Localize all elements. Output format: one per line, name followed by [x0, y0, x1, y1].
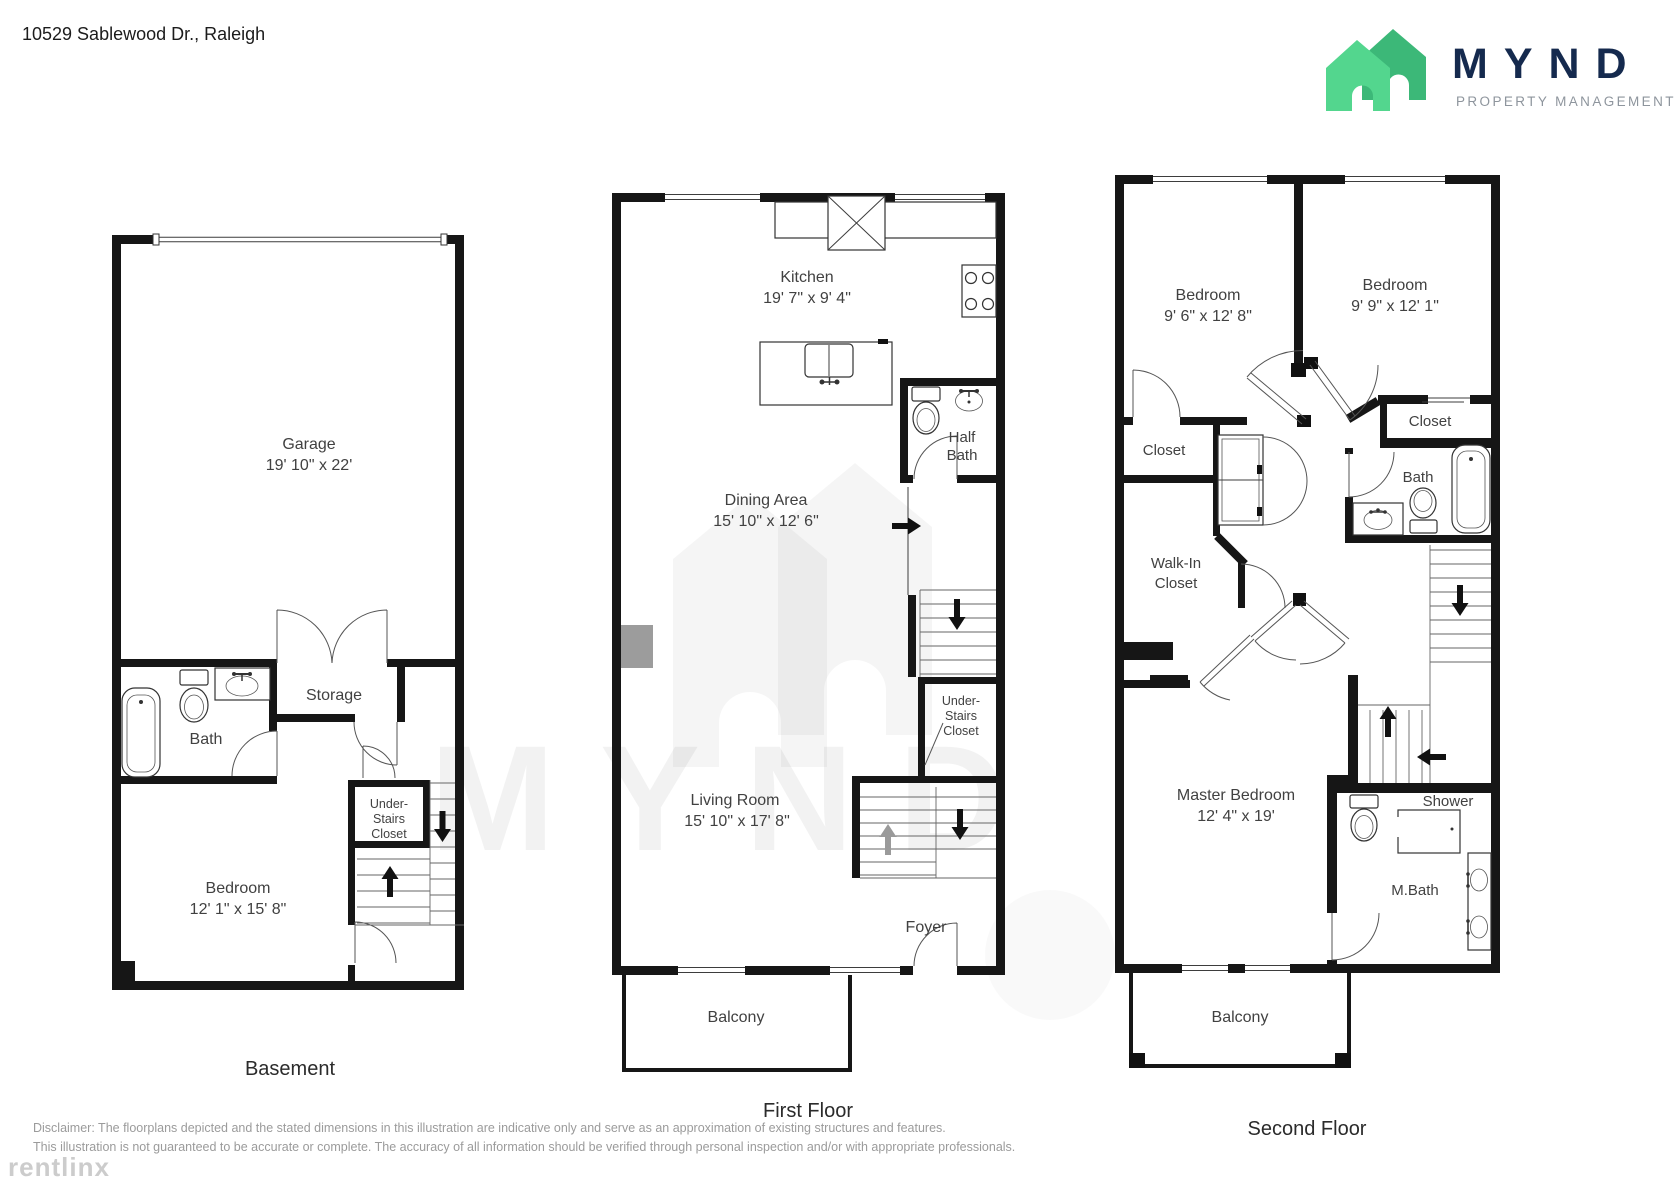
- storage-label: Storage: [306, 687, 362, 704]
- mynd-house-icon: [1322, 26, 1437, 114]
- closet-right-label: Closet: [1409, 413, 1452, 430]
- second-floor-floorplan: Bedroom 9' 6" x 12' 8" Bedroom 9' 9" x 1…: [1100, 165, 1520, 1085]
- second-floor-room-labels: Bedroom 9' 6" x 12' 8" Bedroom 9' 9" x 1…: [1143, 277, 1474, 1026]
- svg-text:Closet: Closet: [1155, 575, 1198, 592]
- disclaimer-line-2: This illustration is not guaranteed to b…: [33, 1140, 1015, 1154]
- master-bath-label: M.Bath: [1391, 882, 1439, 899]
- kitchen-dims: 19' 7" x 9' 4": [763, 290, 851, 307]
- laundry-cabinet: [1218, 435, 1307, 525]
- shower-label: Shower: [1423, 793, 1474, 810]
- stairs-down-arrow: [1452, 585, 1469, 616]
- refrigerator-icon: [828, 196, 885, 250]
- walkin-closet-label: Walk-In: [1151, 555, 1201, 572]
- understairs-closet-label: Under-: [370, 797, 408, 811]
- brand-tagline: PROPERTY MANAGEMENT: [1456, 94, 1676, 109]
- master-bedroom-dims: 12' 4" x 19': [1197, 808, 1275, 825]
- garage-dims: 19' 10" x 22': [266, 457, 353, 474]
- understairs-closet-label: Under-: [942, 694, 980, 708]
- garage-label: Garage: [282, 436, 335, 453]
- bedroom-dims: 12' 1" x 15' 8": [190, 901, 287, 918]
- toilet-icon: [1350, 795, 1378, 841]
- basement-garage-door: [153, 234, 447, 245]
- bedroom-label: Bedroom: [206, 880, 271, 897]
- bedroom2-dims: 9' 9" x 12' 1": [1351, 298, 1439, 315]
- svg-text:Stairs: Stairs: [945, 709, 977, 723]
- closet-left-label: Closet: [1143, 442, 1186, 459]
- first-floor-title: First Floor: [688, 1100, 928, 1123]
- brand-name: MYND: [1452, 40, 1643, 89]
- foyer-label: Foyer: [906, 919, 948, 936]
- bath-label: Bath: [1403, 469, 1434, 486]
- shower-stall: [1397, 810, 1460, 853]
- double-sink-vanity: [1466, 853, 1491, 950]
- second-floor-stairs: [1358, 545, 1491, 783]
- dining-area-dims: 15' 10" x 12' 6": [713, 513, 819, 530]
- stairs-up-arrow: [1380, 706, 1397, 737]
- svg-text:Stairs: Stairs: [373, 812, 405, 826]
- bathtub-icon: [122, 688, 160, 777]
- living-room-dims: 15' 10" x 17' 8": [684, 813, 790, 830]
- bath-label: Bath: [190, 731, 223, 748]
- bedroom1-dims: 9' 6" x 12' 8": [1164, 308, 1252, 325]
- dining-area-label: Dining Area: [725, 492, 808, 509]
- kitchen-label: Kitchen: [780, 269, 833, 286]
- bathtub-icon: [1452, 445, 1490, 533]
- bedroom1-label: Bedroom: [1176, 287, 1241, 304]
- fireplace-block: [621, 625, 653, 668]
- toilet-icon: [180, 670, 208, 722]
- property-address: 10529 Sablewood Dr., Raleigh: [22, 24, 265, 45]
- svg-text:Closet: Closet: [943, 724, 979, 738]
- stairs-down-arrow-lower: [952, 809, 969, 840]
- basement-walls: [112, 235, 464, 990]
- toilet-icon: [912, 387, 940, 434]
- stove-icon: [962, 265, 996, 317]
- first-floor-floorplan: Kitchen 19' 7" x 9' 4" Half Bath Dining …: [600, 175, 1020, 1085]
- balcony-label: Balcony: [708, 1009, 765, 1026]
- sink-icon: [1353, 503, 1403, 535]
- master-bath-fixtures: [1350, 795, 1491, 950]
- sink-icon: [215, 668, 270, 700]
- half-bath-fixtures: [912, 387, 983, 434]
- stairs-up-arrow: [382, 866, 399, 897]
- stairs-down-arrow: [434, 811, 451, 842]
- sink-icon: [956, 389, 983, 411]
- svg-text:Closet: Closet: [371, 827, 407, 841]
- basement-bath-fixtures: [122, 668, 270, 777]
- svg-text:Bath: Bath: [947, 447, 978, 464]
- stairs-left-arrow: [1417, 749, 1446, 766]
- half-bath-label: Half: [949, 429, 977, 446]
- balcony-label: Balcony: [1212, 1009, 1269, 1026]
- rentlinx-watermark: rentlinx: [8, 1152, 110, 1183]
- living-room-label: Living Room: [691, 792, 780, 809]
- master-bedroom-label: Master Bedroom: [1177, 787, 1295, 804]
- stairs-up-arrow-gray: [880, 824, 897, 855]
- second-floor-title: Second Floor: [1187, 1118, 1427, 1141]
- bedroom2-label: Bedroom: [1363, 277, 1428, 294]
- toilet-icon: [1410, 488, 1437, 533]
- basement-floorplan: Garage 19' 10" x 22' Bath Storage Under-…: [100, 225, 480, 1085]
- kitchen-island: [760, 339, 892, 405]
- disclaimer-line-1: Disclaimer: The floorplans depicted and …: [33, 1121, 946, 1135]
